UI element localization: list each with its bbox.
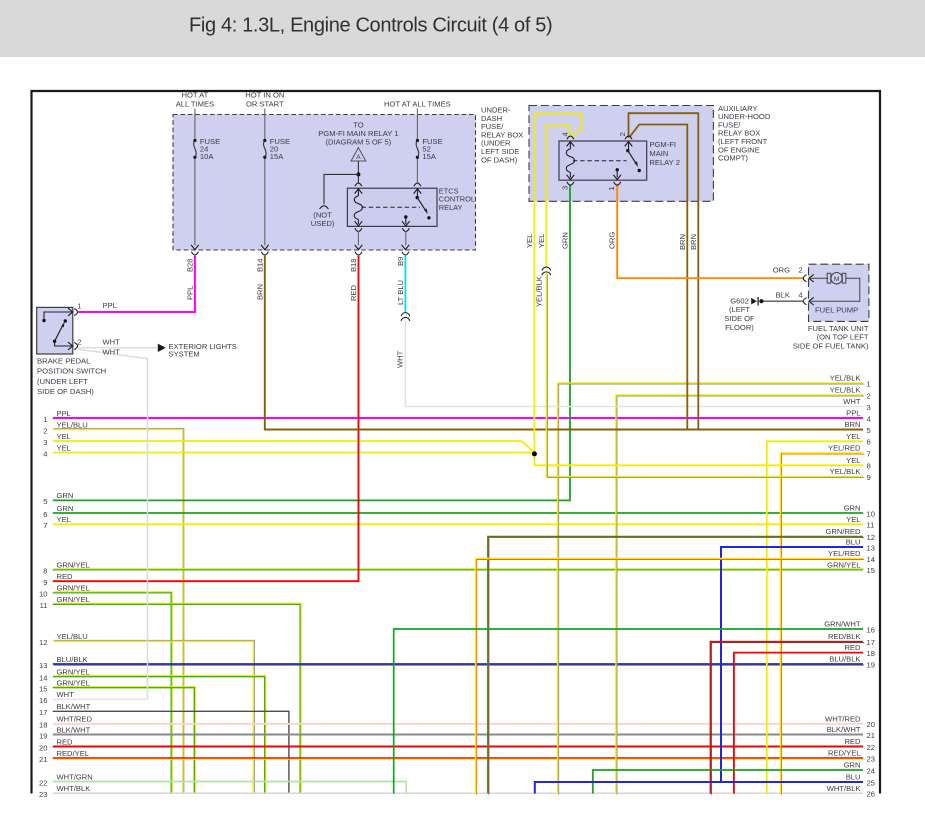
svg-text:WHT/RED: WHT/RED — [57, 715, 93, 724]
svg-text:PPL: PPL — [57, 409, 71, 418]
svg-text:BLK/WHT: BLK/WHT — [827, 725, 861, 734]
svg-text:RED: RED — [57, 737, 74, 746]
svg-text:M: M — [834, 276, 840, 283]
svg-text:16: 16 — [867, 625, 875, 634]
svg-text:WHT/BLK: WHT/BLK — [827, 784, 861, 793]
svg-text:FUEL TANK UNIT: FUEL TANK UNIT — [808, 324, 869, 333]
svg-text:14: 14 — [867, 555, 875, 564]
svg-text:3: 3 — [561, 186, 570, 190]
svg-text:BRN: BRN — [689, 234, 698, 250]
svg-text:8: 8 — [43, 567, 47, 576]
svg-text:15A: 15A — [422, 152, 436, 161]
svg-text:B14: B14 — [255, 258, 264, 272]
svg-text:10A: 10A — [200, 152, 214, 161]
svg-text:2: 2 — [77, 337, 81, 346]
svg-text:PPL: PPL — [185, 286, 194, 300]
svg-text:HOT AT ALL TIMES: HOT AT ALL TIMES — [384, 99, 451, 108]
svg-text:14: 14 — [39, 674, 47, 683]
svg-text:GRN/YEL: GRN/YEL — [57, 595, 90, 604]
svg-text:4: 4 — [561, 132, 570, 136]
svg-text:YEL/BLU: YEL/BLU — [57, 632, 88, 641]
svg-text:GRN/YEL: GRN/YEL — [57, 584, 90, 593]
svg-text:YEL/RED: YEL/RED — [828, 444, 861, 453]
svg-text:BRN: BRN — [255, 284, 264, 300]
svg-text:20: 20 — [867, 720, 875, 729]
svg-text:11: 11 — [40, 601, 48, 610]
svg-text:BRN: BRN — [678, 234, 687, 250]
svg-text:WHT: WHT — [843, 397, 861, 406]
svg-text:8: 8 — [867, 462, 871, 471]
svg-text:WHT/BLK: WHT/BLK — [57, 784, 91, 793]
svg-text:10: 10 — [39, 590, 47, 599]
svg-text:SIDE OF: SIDE OF — [724, 314, 755, 323]
svg-text:OF DASH): OF DASH) — [481, 155, 518, 164]
svg-text:15: 15 — [867, 566, 875, 575]
svg-text:7: 7 — [43, 521, 47, 530]
svg-text:3: 3 — [867, 403, 871, 412]
svg-text:YEL: YEL — [537, 234, 546, 248]
svg-text:ALL TIMES: ALL TIMES — [176, 99, 214, 108]
svg-text:POSITION SWITCH: POSITION SWITCH — [37, 367, 106, 376]
svg-text:B28: B28 — [185, 258, 194, 272]
svg-text:12: 12 — [867, 533, 875, 542]
svg-text:GRN/RED: GRN/RED — [825, 527, 861, 536]
svg-text:RED: RED — [349, 284, 358, 301]
svg-text:RELAY 2: RELAY 2 — [649, 158, 680, 167]
svg-text:GRN/YEL: GRN/YEL — [827, 560, 860, 569]
svg-text:23: 23 — [867, 754, 875, 763]
svg-text:18: 18 — [867, 649, 875, 658]
svg-text:1: 1 — [867, 379, 871, 388]
svg-text:ORG: ORG — [608, 232, 617, 249]
svg-text:9: 9 — [43, 578, 47, 587]
svg-text:(DIAGRAM 5 OF 5): (DIAGRAM 5 OF 5) — [325, 137, 391, 146]
svg-text:YEL/BLK: YEL/BLK — [830, 467, 861, 476]
svg-text:FLOOR): FLOOR) — [725, 323, 754, 332]
svg-text:9: 9 — [867, 473, 871, 482]
svg-text:SIDE OF DASH): SIDE OF DASH) — [37, 387, 94, 396]
svg-text:BLU/BLK: BLU/BLK — [829, 655, 860, 664]
svg-text:ORG: ORG — [773, 265, 790, 274]
svg-text:YEL: YEL — [846, 456, 860, 465]
svg-text:WHT: WHT — [395, 350, 404, 368]
svg-text:21: 21 — [867, 731, 875, 740]
svg-text:YEL: YEL — [846, 515, 860, 524]
svg-text:Fig 4: 1.3L, Engine Controls C: Fig 4: 1.3L, Engine Controls Circuit (4 … — [189, 15, 552, 37]
svg-text:10: 10 — [867, 509, 875, 518]
svg-text:BLU: BLU — [846, 538, 861, 547]
svg-text:(LEFT: (LEFT — [729, 305, 750, 314]
svg-text:SIDE OF FUEL TANK): SIDE OF FUEL TANK) — [793, 341, 869, 350]
svg-text:GRN/YEL: GRN/YEL — [57, 679, 90, 688]
svg-text:YEL/BLU: YEL/BLU — [57, 420, 88, 429]
svg-text:SYSTEM: SYSTEM — [169, 350, 200, 359]
svg-text:13: 13 — [867, 543, 875, 552]
svg-text:GRN/YEL: GRN/YEL — [57, 668, 90, 677]
svg-text:YEL: YEL — [57, 443, 71, 452]
svg-text:23: 23 — [39, 790, 47, 799]
svg-text:21: 21 — [39, 755, 47, 764]
svg-text:15A: 15A — [270, 152, 284, 161]
svg-text:4: 4 — [798, 290, 802, 299]
svg-text:PPL: PPL — [103, 301, 117, 310]
svg-text:A: A — [356, 154, 361, 161]
svg-text:19: 19 — [867, 660, 875, 669]
svg-text:HOT AT: HOT AT — [182, 91, 209, 100]
svg-text:WHT: WHT — [57, 690, 75, 699]
svg-text:22: 22 — [39, 778, 47, 787]
svg-text:6: 6 — [867, 438, 871, 447]
svg-text:5: 5 — [43, 497, 47, 506]
svg-text:20: 20 — [39, 743, 47, 752]
svg-text:BRN: BRN — [844, 420, 860, 429]
svg-text:18: 18 — [39, 721, 47, 730]
svg-text:1: 1 — [43, 415, 47, 424]
svg-text:YEL: YEL — [57, 432, 71, 441]
svg-text:B9: B9 — [396, 257, 405, 266]
svg-text:GRN: GRN — [844, 761, 861, 770]
svg-text:BLK/WHT: BLK/WHT — [57, 725, 91, 734]
svg-text:22: 22 — [867, 743, 875, 752]
svg-text:RELAY: RELAY — [439, 203, 463, 212]
svg-text:4: 4 — [867, 414, 871, 423]
svg-text:RED: RED — [57, 572, 74, 581]
svg-text:YEL/BLK: YEL/BLK — [830, 374, 861, 383]
svg-text:WHT/GRN: WHT/GRN — [57, 772, 93, 781]
svg-text:25: 25 — [867, 778, 875, 787]
svg-text:4: 4 — [43, 449, 47, 458]
svg-text:26: 26 — [867, 790, 875, 799]
svg-text:LT BLU: LT BLU — [396, 280, 405, 305]
svg-text:COMPT): COMPT) — [718, 154, 748, 163]
svg-text:7: 7 — [867, 449, 871, 458]
svg-text:HOT IN ON: HOT IN ON — [245, 91, 284, 100]
svg-text:RED/YEL: RED/YEL — [57, 749, 90, 758]
svg-text:17: 17 — [39, 708, 47, 717]
svg-text:12: 12 — [39, 638, 47, 647]
svg-text:BRAKE PEDAL: BRAKE PEDAL — [37, 357, 91, 366]
svg-text:YEL: YEL — [57, 515, 71, 524]
svg-text:RED/BLK: RED/BLK — [828, 632, 861, 641]
svg-text:6: 6 — [43, 510, 47, 519]
svg-text:FUEL PUMP: FUEL PUMP — [815, 305, 858, 314]
svg-text:16: 16 — [39, 696, 47, 705]
svg-text:YEL: YEL — [846, 432, 860, 441]
svg-text:GRN/WHT: GRN/WHT — [824, 620, 861, 629]
svg-text:WHT: WHT — [103, 337, 121, 346]
svg-text:RED: RED — [844, 643, 861, 652]
svg-text:YEL/RED: YEL/RED — [828, 549, 861, 558]
svg-text:(ON TOP LEFT: (ON TOP LEFT — [817, 333, 869, 342]
svg-text:1: 1 — [77, 302, 81, 311]
svg-text:2: 2 — [798, 265, 802, 274]
svg-text:17: 17 — [867, 638, 875, 647]
svg-text:11: 11 — [867, 521, 875, 530]
svg-text:2: 2 — [867, 391, 871, 400]
svg-text:MAIN: MAIN — [649, 149, 668, 158]
svg-text:24: 24 — [867, 766, 875, 775]
svg-text:USED): USED) — [311, 219, 335, 228]
svg-text:YEL: YEL — [525, 234, 534, 248]
svg-text:1: 1 — [607, 186, 616, 190]
svg-text:2: 2 — [43, 426, 47, 435]
svg-text:PGM-FI: PGM-FI — [649, 140, 676, 149]
svg-text:GRN: GRN — [561, 232, 570, 249]
svg-text:2: 2 — [618, 132, 627, 136]
svg-text:3: 3 — [43, 438, 47, 447]
svg-text:BLU: BLU — [846, 773, 861, 782]
svg-text:19: 19 — [39, 731, 47, 740]
svg-text:13: 13 — [39, 661, 47, 670]
svg-text:OR START: OR START — [246, 99, 284, 108]
svg-text:PPL: PPL — [846, 409, 860, 418]
svg-text:GRN/YEL: GRN/YEL — [57, 561, 90, 570]
svg-text:GRN: GRN — [57, 504, 74, 513]
svg-text:YEL/BLK: YEL/BLK — [534, 276, 543, 307]
svg-text:B18: B18 — [349, 258, 358, 272]
svg-text:WHT: WHT — [103, 348, 121, 357]
svg-text:(UNDER LEFT: (UNDER LEFT — [37, 377, 88, 386]
svg-text:RED: RED — [844, 737, 861, 746]
svg-text:5: 5 — [867, 426, 871, 435]
svg-text:RED/YEL: RED/YEL — [828, 749, 861, 758]
svg-text:GRN: GRN — [844, 504, 861, 513]
svg-text:WHT/RED: WHT/RED — [825, 714, 861, 723]
svg-text:BLK: BLK — [776, 290, 790, 299]
svg-text:YEL/BLK: YEL/BLK — [830, 386, 861, 395]
svg-text:GRN: GRN — [57, 491, 74, 500]
svg-text:15: 15 — [39, 685, 47, 694]
svg-text:BLK/WHT: BLK/WHT — [57, 702, 91, 711]
svg-text:BLU/BLK: BLU/BLK — [57, 655, 88, 664]
